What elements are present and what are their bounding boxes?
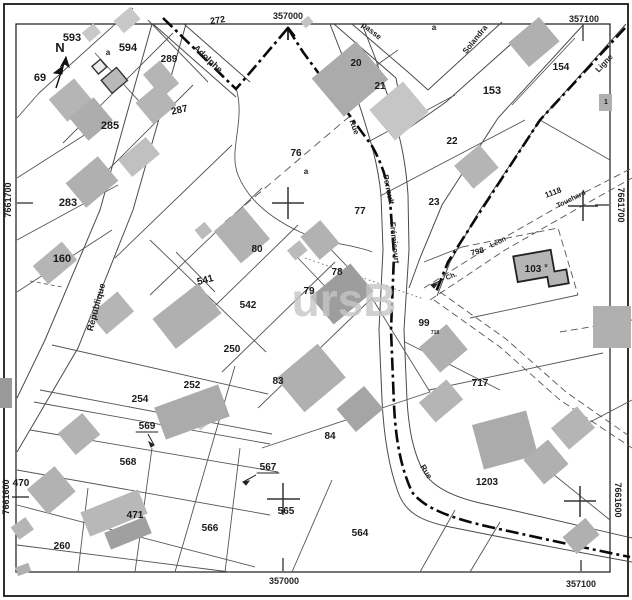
parcel-label-84: 84	[324, 431, 336, 442]
parcel-label-471: 471	[127, 510, 144, 521]
parcel-label-289: 289	[161, 54, 178, 65]
street-label-ch.: Ch.	[445, 271, 458, 282]
coord-label-7661600: 7661600	[1, 479, 11, 514]
parcel-label-1: 1	[604, 99, 608, 106]
watermark-ursb: ursB	[292, 274, 397, 326]
parcel-label-542: 542	[240, 300, 257, 311]
north-arrow-icon	[54, 57, 69, 88]
parcel-label-252: 252	[184, 380, 201, 391]
parcel-label-79: 79	[303, 286, 315, 297]
parcel-label-564: 564	[352, 528, 369, 539]
street-label-rue: Rue	[418, 463, 434, 481]
parcel-label-272: 272	[209, 14, 225, 26]
parcel-label-594: 594	[119, 42, 138, 54]
coord-label-357000: 357000	[273, 11, 303, 21]
north-n: N	[55, 40, 64, 55]
parcel-label-23: 23	[428, 197, 440, 208]
coord-label-357100: 357100	[566, 579, 596, 589]
coord-label-7661700: 7661700	[616, 187, 626, 222]
street-label-léon: Léon	[489, 236, 507, 250]
parcel-label-569: 569	[139, 421, 156, 432]
north-label: N	[55, 40, 64, 55]
parcel-label-250: 250	[224, 344, 241, 355]
parcel-label-99: 99	[418, 318, 430, 329]
parcel-label-103: 103	[525, 264, 542, 275]
street-label-rue: Rue	[348, 118, 362, 136]
parcel-label-a: a	[432, 23, 437, 32]
coord-label-357000: 357000	[269, 576, 299, 586]
parcel-label-1118: 1118	[544, 185, 563, 199]
coord-label-7661600: 7661600	[613, 482, 623, 517]
parcel-label-a: a	[106, 48, 111, 57]
parcel-label-22: 22	[446, 136, 458, 147]
parcel-label-a: a	[304, 167, 309, 176]
parcel-label-285: 285	[101, 120, 119, 132]
watermark-text: ursB	[292, 274, 397, 326]
parcel-label-21: 21	[374, 81, 386, 92]
parcel-label-717: 717	[472, 378, 489, 389]
parcel-label-160: 160	[53, 253, 71, 265]
cadastral-map-canvas: ursB 35700035710035700035710076617007661…	[0, 0, 632, 600]
parcel-label-83: 83	[272, 376, 284, 387]
parcel-label-254: 254	[132, 394, 149, 405]
parcel-label-20: 20	[350, 58, 362, 69]
parcel-label-78: 78	[331, 267, 343, 278]
parcel-label-287: 287	[170, 103, 189, 117]
parcel-label-566: 566	[202, 523, 219, 534]
parcel-label-283: 283	[59, 197, 77, 209]
coord-label-7661700: 7661700	[3, 182, 13, 217]
parcel-label-565: 565	[278, 506, 295, 517]
parcel-label-470: 470	[13, 478, 30, 489]
map-page: ursB 35700035710035700035710076617007661…	[0, 0, 632, 600]
parcel-label-718: 718	[431, 330, 440, 336]
parcel-label-593: 593	[63, 32, 81, 44]
coord-label-357100: 357100	[569, 14, 599, 24]
street-label-ligne: Ligne	[594, 52, 616, 74]
parcel-label-69: 69	[34, 72, 46, 84]
parcel-label-798: 798	[470, 245, 486, 257]
parcel-label-80: 80	[251, 244, 263, 255]
parcel-label-153: 153	[483, 85, 501, 97]
parcel-label-260: 260	[54, 541, 71, 552]
parcel-label-154: 154	[553, 62, 570, 73]
parcel-label-1203: 1203	[476, 477, 499, 488]
parcel-label-77: 77	[354, 206, 366, 217]
street-label-perrault: Perrault	[381, 174, 396, 206]
parcel-label-568: 568	[120, 457, 137, 468]
parcel-label-567: 567	[260, 462, 277, 473]
parcel-label-76: 76	[290, 148, 302, 159]
parcel-label-u: u	[544, 263, 547, 269]
street-label-frémicourt: Frémicourt	[388, 221, 401, 264]
street-label-solandra: Solandra	[461, 23, 490, 56]
